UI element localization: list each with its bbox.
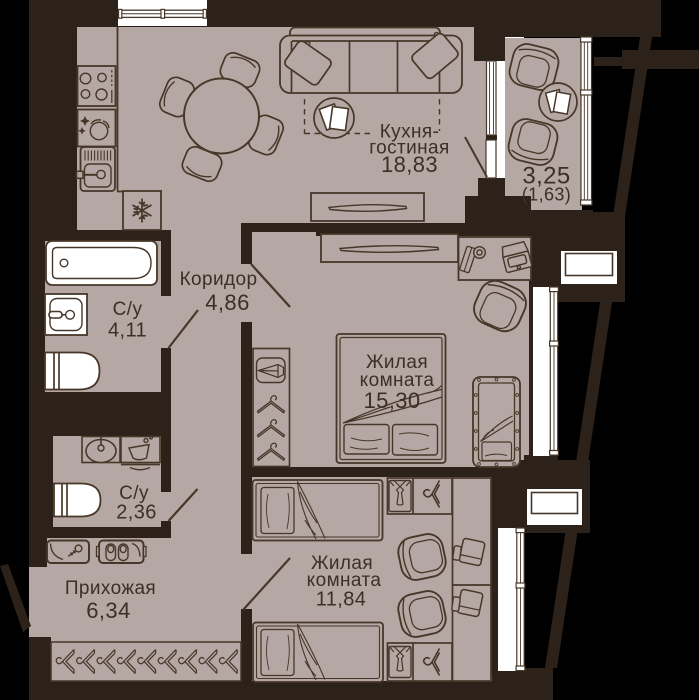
svg-text:4,11: 4,11 xyxy=(108,320,147,342)
svg-text:(1,63): (1,63) xyxy=(522,185,571,205)
svg-text:11,84: 11,84 xyxy=(316,589,367,611)
svg-text:18,83: 18,83 xyxy=(381,152,438,177)
svg-text:2,36: 2,36 xyxy=(116,502,157,524)
svg-text:С/у: С/у xyxy=(113,299,143,320)
svg-text:Коридор: Коридор xyxy=(180,269,258,290)
svg-text:6,34: 6,34 xyxy=(86,598,130,623)
svg-text:15,30: 15,30 xyxy=(363,388,420,413)
svg-text:4,86: 4,86 xyxy=(205,290,249,315)
svg-text:Прихожая: Прихожая xyxy=(65,578,156,599)
